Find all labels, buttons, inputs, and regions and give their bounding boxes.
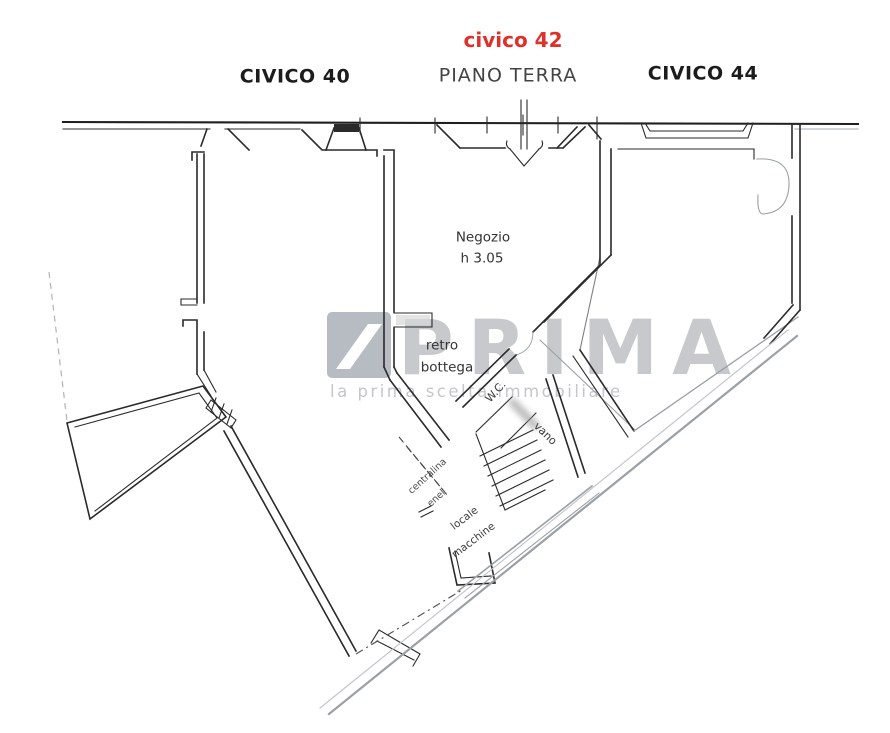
room-label-enel: enel (426, 488, 448, 509)
room-height-note: h 3.05 (461, 252, 504, 267)
labels-layer: civico 42 CIVICO 40 PIANO TERRA CIVICO 4… (0, 0, 890, 733)
room-label-locale: locale (449, 505, 481, 533)
room-label-wc: W.C. (483, 379, 508, 405)
room-label-bottega: bottega (421, 361, 474, 376)
room-label-vano: vano (531, 420, 559, 447)
unit-label-civico-42: civico 42 (464, 29, 563, 51)
room-label-retro: retro (426, 339, 458, 354)
room-label-negozio: Negozio (456, 231, 510, 246)
unit-label-civico-44: CIVICO 44 (648, 64, 758, 85)
floor-plan-page: PRIMA la prima scelta immobiliare (0, 0, 890, 733)
floor-label-piano-terra: PIANO TERRA (439, 66, 578, 87)
unit-label-civico-40: CIVICO 40 (240, 67, 350, 88)
